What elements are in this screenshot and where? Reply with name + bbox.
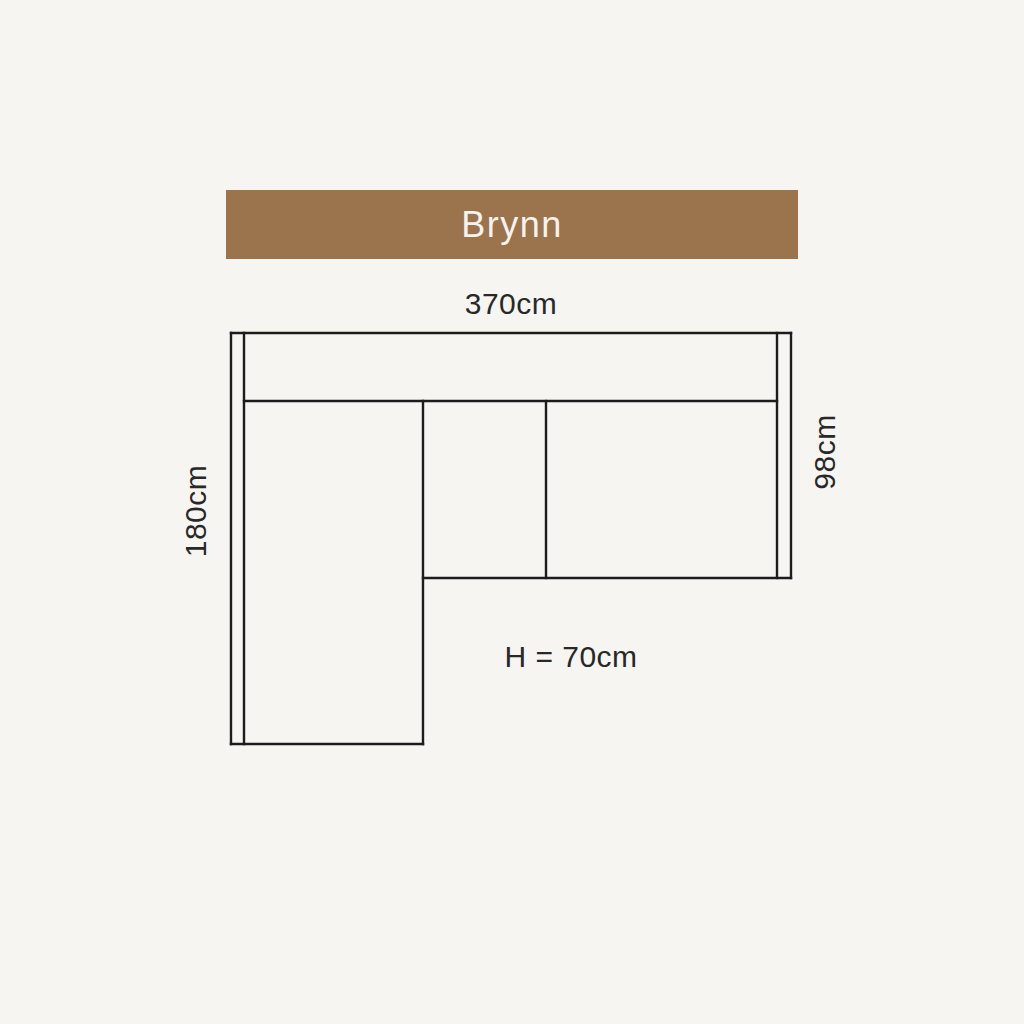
chaise-length-dimension-label: 180cm <box>181 465 211 558</box>
sofa-outline-drawing <box>0 0 1024 1024</box>
seat-height-dimension-label: H = 70cm <box>504 642 637 672</box>
depth-dimension-label: 98cm <box>810 414 840 489</box>
total-width-dimension-label: 370cm <box>231 289 791 319</box>
product-dimension-sheet: Brynn 370cm 98cm 180cm H = 70cm <box>0 0 1024 1024</box>
